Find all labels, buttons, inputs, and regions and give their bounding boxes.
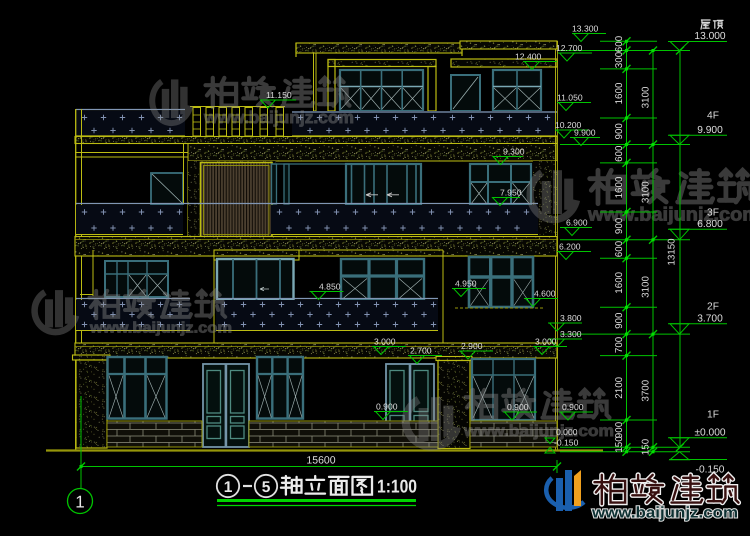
svg-text:6.800: 6.800 (697, 219, 723, 230)
svg-text:7.950: 7.950 (500, 188, 522, 198)
svg-text:3.700: 3.700 (697, 313, 723, 324)
svg-text:13.000: 13.000 (694, 31, 725, 42)
svg-text:1: 1 (224, 479, 233, 496)
svg-text:-0.150: -0.150 (554, 438, 579, 448)
svg-text:1600: 1600 (614, 176, 625, 198)
svg-text:1: 1 (75, 493, 84, 512)
svg-text:0.000: 0.000 (556, 427, 578, 437)
svg-text:3100: 3100 (641, 86, 652, 108)
svg-text:700: 700 (614, 336, 625, 353)
svg-text:www.baijunjz.com: www.baijunjz.com (89, 319, 232, 336)
svg-text:11.050: 11.050 (557, 93, 583, 103)
svg-text:150: 150 (641, 438, 652, 455)
svg-text:4.600: 4.600 (534, 289, 556, 299)
svg-text:9.900: 9.900 (697, 125, 723, 136)
svg-text:1600: 1600 (614, 82, 625, 104)
svg-text:600: 600 (614, 145, 625, 162)
svg-text:2100: 2100 (614, 376, 625, 398)
svg-text:4.950: 4.950 (455, 279, 477, 289)
svg-text:900: 900 (614, 123, 625, 140)
svg-text:6.200: 6.200 (559, 242, 581, 252)
svg-text:3100: 3100 (641, 276, 652, 298)
svg-text:300: 300 (614, 51, 625, 68)
svg-text:15600: 15600 (306, 455, 335, 467)
svg-text:9.300: 9.300 (503, 147, 525, 157)
svg-text:900: 900 (614, 421, 625, 438)
svg-text:600: 600 (614, 35, 625, 52)
svg-text:4.850: 4.850 (319, 282, 341, 292)
svg-text:12.400: 12.400 (515, 52, 542, 62)
svg-text:11.150: 11.150 (266, 90, 292, 100)
svg-text:13150: 13150 (667, 238, 678, 266)
svg-text:900: 900 (614, 217, 625, 234)
svg-text:12.700: 12.700 (556, 43, 583, 53)
svg-text:3F: 3F (707, 208, 719, 219)
svg-text:0.900: 0.900 (376, 402, 398, 412)
svg-text:3.800: 3.800 (560, 313, 582, 323)
svg-text:0.900: 0.900 (562, 402, 584, 412)
svg-text:13.300: 13.300 (572, 24, 599, 34)
svg-text:3700: 3700 (641, 379, 652, 401)
svg-text:-0.150: -0.150 (696, 465, 725, 476)
svg-text:600: 600 (614, 240, 625, 257)
svg-text:0.900: 0.900 (507, 402, 529, 412)
svg-text:3.000: 3.000 (535, 337, 557, 347)
svg-text:9.900: 9.900 (574, 128, 596, 138)
svg-text:www.baijunjz.com: www.baijunjz.com (591, 505, 738, 522)
svg-text:2.900: 2.900 (461, 341, 483, 351)
svg-text:4F: 4F (707, 111, 719, 122)
svg-text:1600: 1600 (614, 271, 625, 293)
svg-text:2F: 2F (707, 302, 719, 313)
svg-text:www.baijunjz.com: www.baijunjz.com (587, 205, 750, 226)
svg-text:2.700: 2.700 (410, 346, 432, 356)
svg-text:1F: 1F (707, 410, 719, 421)
svg-text:www.baijunjz.com: www.baijunjz.com (463, 423, 614, 440)
svg-text:3.000: 3.000 (374, 337, 396, 347)
svg-text:±0.000: ±0.000 (694, 427, 725, 438)
svg-text:900: 900 (614, 312, 625, 329)
svg-text:5: 5 (262, 479, 271, 496)
svg-text:6.900: 6.900 (566, 218, 588, 228)
svg-text:3.300: 3.300 (560, 329, 582, 339)
svg-text:150: 150 (614, 436, 625, 453)
svg-text:www.baijunjz.com: www.baijunjz.com (203, 108, 354, 127)
svg-text:1:100: 1:100 (377, 476, 417, 497)
svg-text:3100: 3100 (641, 181, 652, 203)
